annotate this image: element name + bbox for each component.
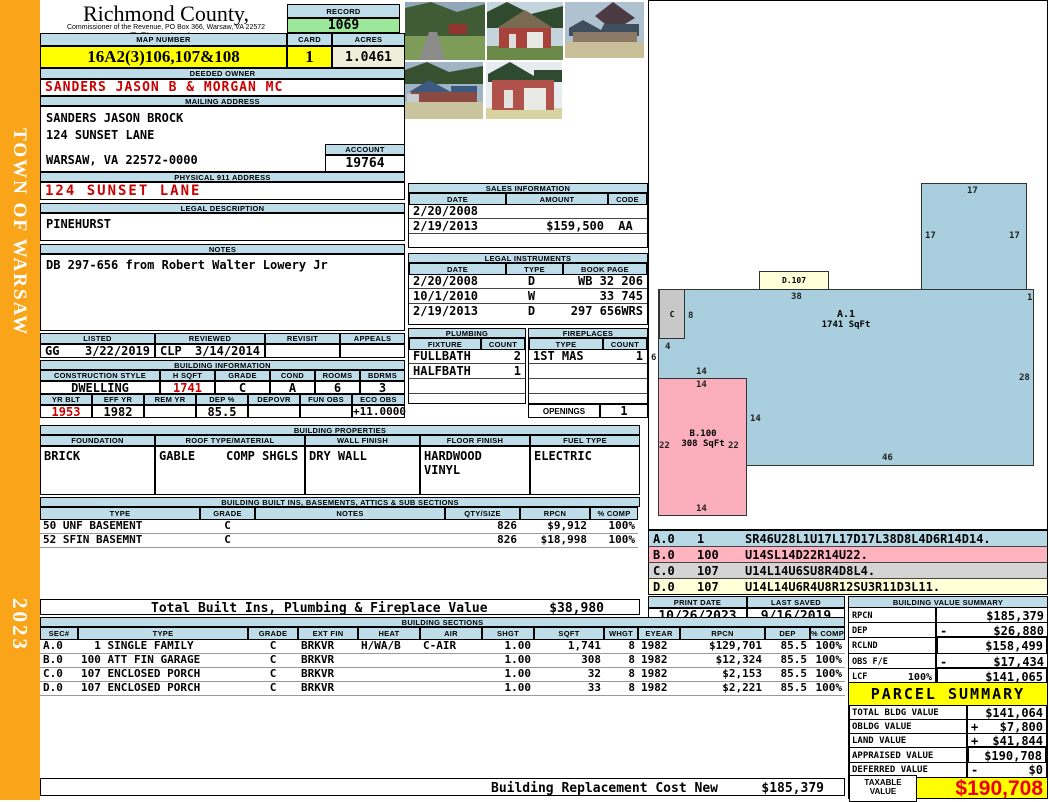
grade-label: GRADE (215, 370, 270, 381)
building-info-title: BUILDING INFORMATION (40, 360, 405, 370)
parcel-summary-title: PARCEL SUMMARY (849, 683, 1047, 706)
dep-pct-label: DEP % (196, 394, 248, 405)
vs-label: LCF (852, 672, 867, 682)
vector-code: 1 (697, 532, 745, 546)
sections-table: SEC# TYPE GRADE EXT FIN HEAT AIR SHGT SQ… (40, 627, 845, 696)
parcel-label: OBLDG VALUE (852, 722, 912, 732)
wall-finish-value-box: DRY WALL (305, 446, 420, 495)
sections-title: BUILDING SECTIONS (40, 617, 845, 627)
built-ins-total-row: Total Built Ins, Plumbing & Fireplace Va… (40, 599, 640, 615)
vector-sec: C.0 (649, 564, 697, 578)
parcel-summary: PARCEL SUMMARY TOTAL BLDG VALUE $141,064… (848, 682, 1048, 799)
sections-header: WHGT (604, 627, 638, 640)
sketch-panel: C D.107 A.1 1741 SqFt B.100 308 SqFt 17 … (648, 0, 1048, 530)
taxable-row: TAXABLE VALUE $190,708 (849, 777, 1047, 800)
roof-type-value: GABLE (159, 449, 195, 463)
section-cell: 308 (534, 654, 604, 668)
plumbing-row: HALFBATH1 (409, 364, 525, 379)
fixture-count: 2 (483, 349, 525, 363)
construction-style-value: DWELLING (40, 381, 160, 394)
cond-label: COND (270, 370, 315, 381)
fixture: HALFBATH (409, 364, 483, 378)
eco-obs-label: ECO OBS (352, 394, 405, 405)
reviewed-value: CLP3/14/2014 (155, 344, 265, 358)
section-cell: 1982 (638, 682, 680, 696)
bdrms-label: BDRMS (360, 370, 405, 381)
parcel-label: APPRAISED VALUE (852, 751, 933, 761)
map-number-value: 16A2(3)106,107&108 (40, 46, 287, 68)
sketch-area-a-label: A.1 1741 SqFt (786, 309, 906, 330)
building-properties-title: BUILDING PROPERTIES (40, 425, 640, 435)
vector-code: 107 (697, 580, 745, 594)
deeded-owner-label: DEEDED OWNER (40, 68, 405, 79)
plumbing-title: PLUMBING (408, 328, 526, 338)
section-cell: 8 (604, 682, 638, 696)
physical-address-value: 124 SUNSET LANE (40, 182, 405, 200)
sections-header: SHGT (482, 627, 534, 640)
section-cell: C.0 (40, 668, 78, 682)
reviewed-label: REVIEWED (155, 333, 265, 344)
parcel-label: DEFERRED VALUE (852, 765, 928, 775)
dim-label: 6 (651, 353, 656, 363)
sales-row (409, 234, 647, 248)
sections-header: DEP (765, 627, 810, 640)
floor-finish-label: FLOOR FINISH (420, 435, 530, 446)
section-cell: 1982 (638, 640, 680, 654)
account-label: ACCOUNT (325, 144, 405, 155)
instruments-title: LEGAL INSTRUMENTS (408, 253, 648, 263)
sections-header: SQFT (534, 627, 604, 640)
taxable-label-cell: TAXABLE VALUE (849, 775, 917, 802)
vs-pct: 100% (908, 672, 932, 683)
section-cell: 85.5 (765, 654, 810, 668)
sections-header: AIR (420, 627, 482, 640)
vector-code: 100 (697, 548, 745, 562)
built-in-cell: $18,998 (520, 534, 590, 548)
map-number-label: MAP NUMBER (40, 33, 287, 46)
instrument-type: D (504, 304, 559, 318)
built-ins-header-grade: GRADE (200, 507, 255, 520)
sales-date: 2/20/2008 (409, 204, 504, 218)
fuel-type-value-box: ELECTRIC (530, 446, 640, 495)
sketch-area-c-label: C (670, 310, 675, 319)
wall-finish-value: DRY WALL (309, 449, 367, 463)
section-cell: 85.5 (765, 668, 810, 682)
replacement-cost-label: Building Replacement Cost New (491, 781, 718, 796)
taxable-label-1: TAXABLE (850, 778, 916, 787)
rooms-label: ROOMS (315, 370, 360, 381)
eff-yr-value: 1982 (92, 405, 144, 418)
section-cell: 100% (810, 640, 845, 654)
foundation-value: BRICK (44, 449, 80, 463)
card-value: 1 (287, 46, 332, 68)
value-summary-row: RPCN $185,379 (848, 608, 1048, 623)
instrument-book: 33 745 (559, 289, 647, 303)
openings-label: OPENINGS (543, 407, 585, 416)
section-cell: C (248, 640, 298, 654)
section-cell: $12,324 (680, 654, 765, 668)
record-label: RECORD (287, 4, 400, 18)
section-cell: $2,153 (680, 668, 765, 682)
section-cell: 32 (534, 668, 604, 682)
sales-row: 2/20/2008 (409, 204, 647, 219)
photo-garage-front (487, 2, 563, 60)
section-cell: B.0 (40, 654, 78, 668)
instruments-table: DATE TYPE BOOK PAGE 2/20/2008DWB 32 206 … (408, 263, 648, 325)
built-in-cell: 50 UNF BASEMENT (40, 520, 200, 534)
photo-house-front (565, 2, 644, 58)
built-ins-header-qty: QTY/SIZE (445, 507, 520, 520)
vector-code: 107 (697, 564, 745, 578)
section-cell (358, 682, 420, 696)
parcel-value: $190,708 (972, 749, 1042, 763)
rooms-value: 6 (315, 381, 360, 394)
built-in-cell: C (200, 534, 255, 548)
acres-value: 1.0461 (332, 46, 405, 68)
fireplace-row (529, 364, 647, 379)
built-ins-title: BUILDING BUILT INS, BASEMENTS, ATTICS & … (40, 497, 640, 507)
mailing-line: WARSAW, VA 22572-0000 (46, 153, 198, 167)
built-ins-header-comp: % COMP (590, 507, 638, 520)
section-cell: BRKVR (298, 682, 358, 696)
sketch-vector-table: A.01SR46U28L1U17L17D17L38D8L4D6R14D14. B… (648, 530, 1048, 595)
vector-path: U14SL14D22R14U22. (745, 548, 1047, 562)
vector-path: U14L14U6SU8R4D8L4. (745, 564, 1047, 578)
photo-driveway (405, 2, 485, 60)
parcel-value: $7,800 (978, 720, 1043, 734)
roof-label: ROOF TYPE/MATERIAL (155, 435, 305, 446)
sketch-area-d-label: D.107 (782, 276, 806, 285)
section-cell (358, 654, 420, 668)
listed-date: 3/22/2019 (85, 344, 150, 358)
dim-label: 14 (750, 414, 761, 424)
roof-value-box: GABLE COMP SHGLS (155, 446, 305, 495)
print-date-label: PRINT DATE (648, 596, 747, 608)
taxable-label-2: VALUE (850, 787, 916, 796)
photo-house-rear (405, 62, 483, 119)
section-cell: 8 (604, 654, 638, 668)
dim-label: 46 (882, 453, 893, 463)
section-cell: 8 (604, 640, 638, 654)
fireplace-type: 1ST MAS (529, 349, 605, 363)
value-summary-table: RPCN $185,379 DEP -$26,880 RCLND $158,49… (848, 608, 1048, 685)
vs-label: DEP (852, 626, 867, 636)
replacement-cost-row: Building Replacement Cost New $185,379 (40, 778, 845, 796)
notes-box: DB 297-656 from Robert Walter Lowery Jr (40, 254, 405, 331)
vs-value: $185,379 (940, 609, 1044, 623)
section-cell (358, 668, 420, 682)
fuel-type-value: ELECTRIC (534, 449, 592, 463)
floor-finish-value-1: HARDWOOD (424, 449, 482, 463)
sections-header: EYEAR (638, 627, 680, 640)
section-cell (420, 654, 482, 668)
sales-date: 2/19/2013 (409, 219, 504, 233)
section-cell: 100% (810, 682, 845, 696)
section-cell: C (248, 682, 298, 696)
notes-value: DB 297-656 from Robert Walter Lowery Jr (46, 258, 328, 272)
sections-header: TYPE (78, 627, 248, 640)
section-cell: H/WA/B (358, 640, 420, 654)
sales-row: 2/19/2013$159,500AA (409, 219, 647, 234)
section-cell: 1,741 (534, 640, 604, 654)
foundation-label: FOUNDATION (40, 435, 155, 446)
construction-style-label: CONSTRUCTION STYLE (40, 370, 160, 381)
bdrms-value: 3 (360, 381, 405, 394)
eco-obs-value: +11.0000 (352, 405, 405, 418)
sales-table: DATE AMOUNT CODE 2/20/2008 2/19/2013$159… (408, 193, 648, 248)
instrument-row: 2/19/2013D297 656WRS (409, 304, 647, 318)
dim-label: 22 (659, 441, 670, 451)
section-cell (420, 668, 482, 682)
dim-label: 28 (1019, 373, 1030, 383)
fun-obs-label: FUN OBS (300, 394, 352, 405)
built-in-cell: 100% (590, 534, 638, 548)
last-saved-label: LAST SAVED (747, 596, 845, 608)
listed-value: GG3/22/2019 (40, 344, 155, 358)
built-in-cell: 826 (445, 520, 520, 534)
sales-amount: $159,500 (504, 219, 604, 233)
built-ins-total-value: $38,980 (549, 601, 604, 616)
section-cell: 107 ENCLOSED PORCH (78, 682, 248, 696)
parcel-row: OBLDG VALUE +$7,800 (849, 720, 1047, 734)
parcel-label: LAND VALUE (852, 736, 906, 746)
notes-label: NOTES (40, 244, 405, 254)
reviewed-by: CLP (160, 344, 182, 358)
dim-label: 22 (728, 441, 739, 451)
h-sqft-value: 1741 (160, 381, 215, 394)
plumbing-table: FIXTURE COUNT FULLBATH2 HALFBATH1 (408, 338, 526, 404)
parcel-label: TOTAL BLDG VALUE (852, 708, 939, 718)
section-cell: BRKVR (298, 640, 358, 654)
physical-address-label: PHYSICAL 911 ADDRESS (40, 172, 405, 182)
depovr-label: DEPOVR (248, 394, 300, 405)
fixture-count: 1 (483, 364, 525, 378)
instrument-date: 2/20/2008 (409, 274, 504, 288)
instrument-date: 10/1/2010 (409, 289, 504, 303)
built-ins-header-rpcn: RPCN (520, 507, 590, 520)
cond-value: A (270, 381, 315, 394)
built-in-cell: $9,912 (520, 520, 590, 534)
built-in-cell: 826 (445, 534, 520, 548)
h-sqft-label: H SQFT (160, 370, 215, 381)
sidebar-year-label: 2023 (7, 598, 32, 652)
sidebar: TOWN OF WARSAW 2023 (0, 0, 40, 800)
sections-header: SEC# (40, 627, 78, 640)
dim-label: 8 (688, 311, 693, 321)
sections-header: RPCN (680, 627, 765, 640)
listed-by: GG (45, 344, 59, 358)
account-value: 19764 (325, 155, 405, 172)
vs-label: RCLND (852, 641, 878, 651)
instrument-book: WB 32 206 (559, 274, 647, 288)
area-a-sqft: 1741 SqFt (786, 320, 906, 330)
built-in-cell: C (200, 520, 255, 534)
rem-yr-label: REM YR (144, 394, 196, 405)
sidebar-town-label: TOWN OF WARSAW (8, 128, 30, 336)
sales-header-code: CODE (608, 193, 647, 205)
parcel-row: TOTAL BLDG VALUE $141,064 (849, 706, 1047, 720)
sections-header: % COMP (810, 627, 845, 640)
dim-label: 1 (1027, 293, 1032, 303)
sections-header: EXT FIN (298, 627, 358, 640)
parcel-value: $0 (978, 763, 1043, 777)
section-cell: 85.5 (765, 640, 810, 654)
legal-description-box: PINEHURST (40, 213, 405, 241)
dim-label: 14 (696, 504, 707, 514)
section-cell: BRKVR (298, 654, 358, 668)
area-b-id: B.100 (663, 429, 743, 439)
instrument-type: D (504, 274, 559, 288)
section-cell: C (248, 654, 298, 668)
vector-sec: D.0 (649, 580, 697, 594)
vector-row: B.0100U14SL14D22R14U22. (649, 547, 1047, 563)
dim-label: 4 (665, 342, 670, 352)
vs-label: RPCN (852, 611, 872, 621)
fixture: FULLBATH (409, 349, 483, 363)
dim-label: 17 (925, 231, 936, 241)
rem-yr-value (144, 405, 196, 418)
plumbing-row (409, 394, 525, 407)
dim-label: 14 (696, 367, 707, 377)
commissioner-subtitle: Commissioner of the Revenue, PO Box 366,… (45, 24, 287, 31)
dim-label: 38 (791, 292, 802, 302)
parcel-sign: - (971, 763, 978, 777)
section-cell: $2,221 (680, 682, 765, 696)
eff-yr-label: EFF YR (92, 394, 144, 405)
section-cell: 1.00 (482, 640, 534, 654)
sales-title: SALES INFORMATION (408, 183, 648, 193)
plumbing-row: FULLBATH2 (409, 349, 525, 364)
sections-header: HEAT (358, 627, 420, 640)
value-summary-row: RCLND $158,499 (848, 638, 1048, 654)
revisit-label: REVISIT (265, 333, 340, 344)
fireplaces-table: TYPE COUNT 1ST MAS1 (528, 338, 648, 404)
section-cell: 85.5 (765, 682, 810, 696)
fireplaces-title: FIREPLACES (528, 328, 648, 338)
instrument-book: 297 656WRS (559, 304, 647, 318)
sketch-area-c: C (659, 289, 685, 339)
property-record-card: { "colors":{"sidebar_orange":"#FAA519","… (0, 0, 1050, 800)
instrument-date: 2/19/2013 (409, 304, 504, 318)
section-cell: 107 ENCLOSED PORCH (78, 668, 248, 682)
appeals-value (340, 344, 405, 358)
openings-label-cell: OPENINGS (528, 404, 600, 418)
fireplace-count: 1 (605, 349, 647, 363)
parcel-sign: + (971, 720, 978, 734)
sales-header-amount: AMOUNT (506, 193, 608, 205)
grade-value: C (215, 381, 270, 394)
fuel-type-label: FUEL TYPE (530, 435, 640, 446)
built-in-cell (255, 520, 445, 534)
section-cell: C-AIR (420, 640, 482, 654)
photo-shed-closeup (486, 62, 562, 119)
revisit-value (265, 344, 340, 358)
section-cell: 100 ATT FIN GARAGE (78, 654, 248, 668)
area-a-id: A.1 (786, 309, 906, 320)
roof-material-value: COMP SHGLS (226, 449, 298, 463)
sketch-area-d: D.107 (759, 271, 829, 290)
dim-label: 17 (967, 186, 978, 196)
fun-obs-value (300, 405, 352, 418)
dim-label: 14 (696, 380, 707, 390)
section-cell: 1982 (638, 654, 680, 668)
instrument-row: 10/1/2010W33 745 (409, 289, 647, 304)
vector-row: C.0107U14L14U6SU8R4D8L4. (649, 563, 1047, 579)
section-cell: 1982 (638, 668, 680, 682)
built-in-cell: 52 SFIN BASEMNT (40, 534, 200, 548)
instrument-type: W (504, 289, 559, 303)
vector-row: A.01SR46U28L1U17L17D17L38D8L4D6R14D14. (649, 531, 1047, 547)
built-ins-header-notes: NOTES (255, 507, 445, 520)
section-cell (420, 682, 482, 696)
legal-description-value: PINEHURST (46, 217, 111, 231)
acres-label: ACRES (332, 33, 405, 46)
section-cell: D.0 (40, 682, 78, 696)
openings-count: 1 (600, 404, 648, 418)
parcel-value: $141,064 (971, 706, 1043, 720)
fireplace-row: 1ST MAS1 (529, 349, 647, 364)
card-label: CARD (287, 33, 332, 46)
yr-blt-value: 1953 (40, 405, 92, 418)
vector-sec: A.0 (649, 532, 697, 546)
vs-value: $158,499 (941, 639, 1043, 653)
deeded-owner-value: SANDERS JASON B & MORGAN MC (40, 79, 405, 96)
vector-path: U14L14U6R4U8R12SU3R11D3L11. (745, 580, 1047, 594)
parcel-row: APPRAISED VALUE $190,708 (849, 748, 1047, 763)
section-cell: A.0 (40, 640, 78, 654)
yr-blt-label: YR BLT (40, 394, 92, 405)
built-ins-header-type: TYPE (40, 507, 200, 520)
legal-description-label: LEGAL DESCRIPTION (40, 203, 405, 213)
built-ins-total-label: Total Built Ins, Plumbing & Fireplace Va… (151, 601, 488, 616)
wall-finish-label: WALL FINISH (305, 435, 420, 446)
section-cell: 1 SINGLE FAMILY (78, 640, 248, 654)
sales-code: AA (604, 219, 647, 233)
depovr-value (248, 405, 300, 418)
section-cell: 1.00 (482, 654, 534, 668)
vector-sec: B.0 (649, 548, 697, 562)
fireplace-row (529, 379, 647, 394)
record-number: 1069 (287, 18, 400, 33)
plumbing-row (409, 379, 525, 394)
dim-label: 17 (1009, 231, 1020, 241)
taxable-value: $190,708 (917, 777, 1047, 800)
mailing-line: 124 SUNSET LANE (46, 128, 154, 142)
built-ins-table: TYPE GRADE NOTES QTY/SIZE RPCN % COMP 50… (40, 507, 638, 548)
foundation-value-box: BRICK (40, 446, 155, 495)
built-in-cell (255, 534, 445, 548)
mailing-address-label: MAILING ADDRESS (40, 96, 405, 106)
section-cell: 100% (810, 668, 845, 682)
section-cell: BRKVR (298, 668, 358, 682)
built-in-cell: 100% (590, 520, 638, 534)
appeals-label: APPEALS (340, 333, 405, 344)
vs-label: OBS F/E (852, 657, 888, 667)
mailing-line: SANDERS JASON BROCK (46, 111, 183, 125)
photo-strip (405, 0, 648, 122)
section-cell: 100% (810, 654, 845, 668)
listed-label: LISTED (40, 333, 155, 344)
section-cell: C (248, 668, 298, 682)
vector-row: D.0107U14L14U6R4U8R12SU3R11D3L11. (649, 579, 1047, 594)
sections-header: GRADE (248, 627, 298, 640)
section-cell: $129,701 (680, 640, 765, 654)
reviewed-date: 3/14/2014 (195, 344, 260, 358)
section-cell: 33 (534, 682, 604, 696)
section-cell: 1.00 (482, 668, 534, 682)
section-cell: 1.00 (482, 682, 534, 696)
instrument-row: 2/20/2008DWB 32 206 (409, 274, 647, 289)
